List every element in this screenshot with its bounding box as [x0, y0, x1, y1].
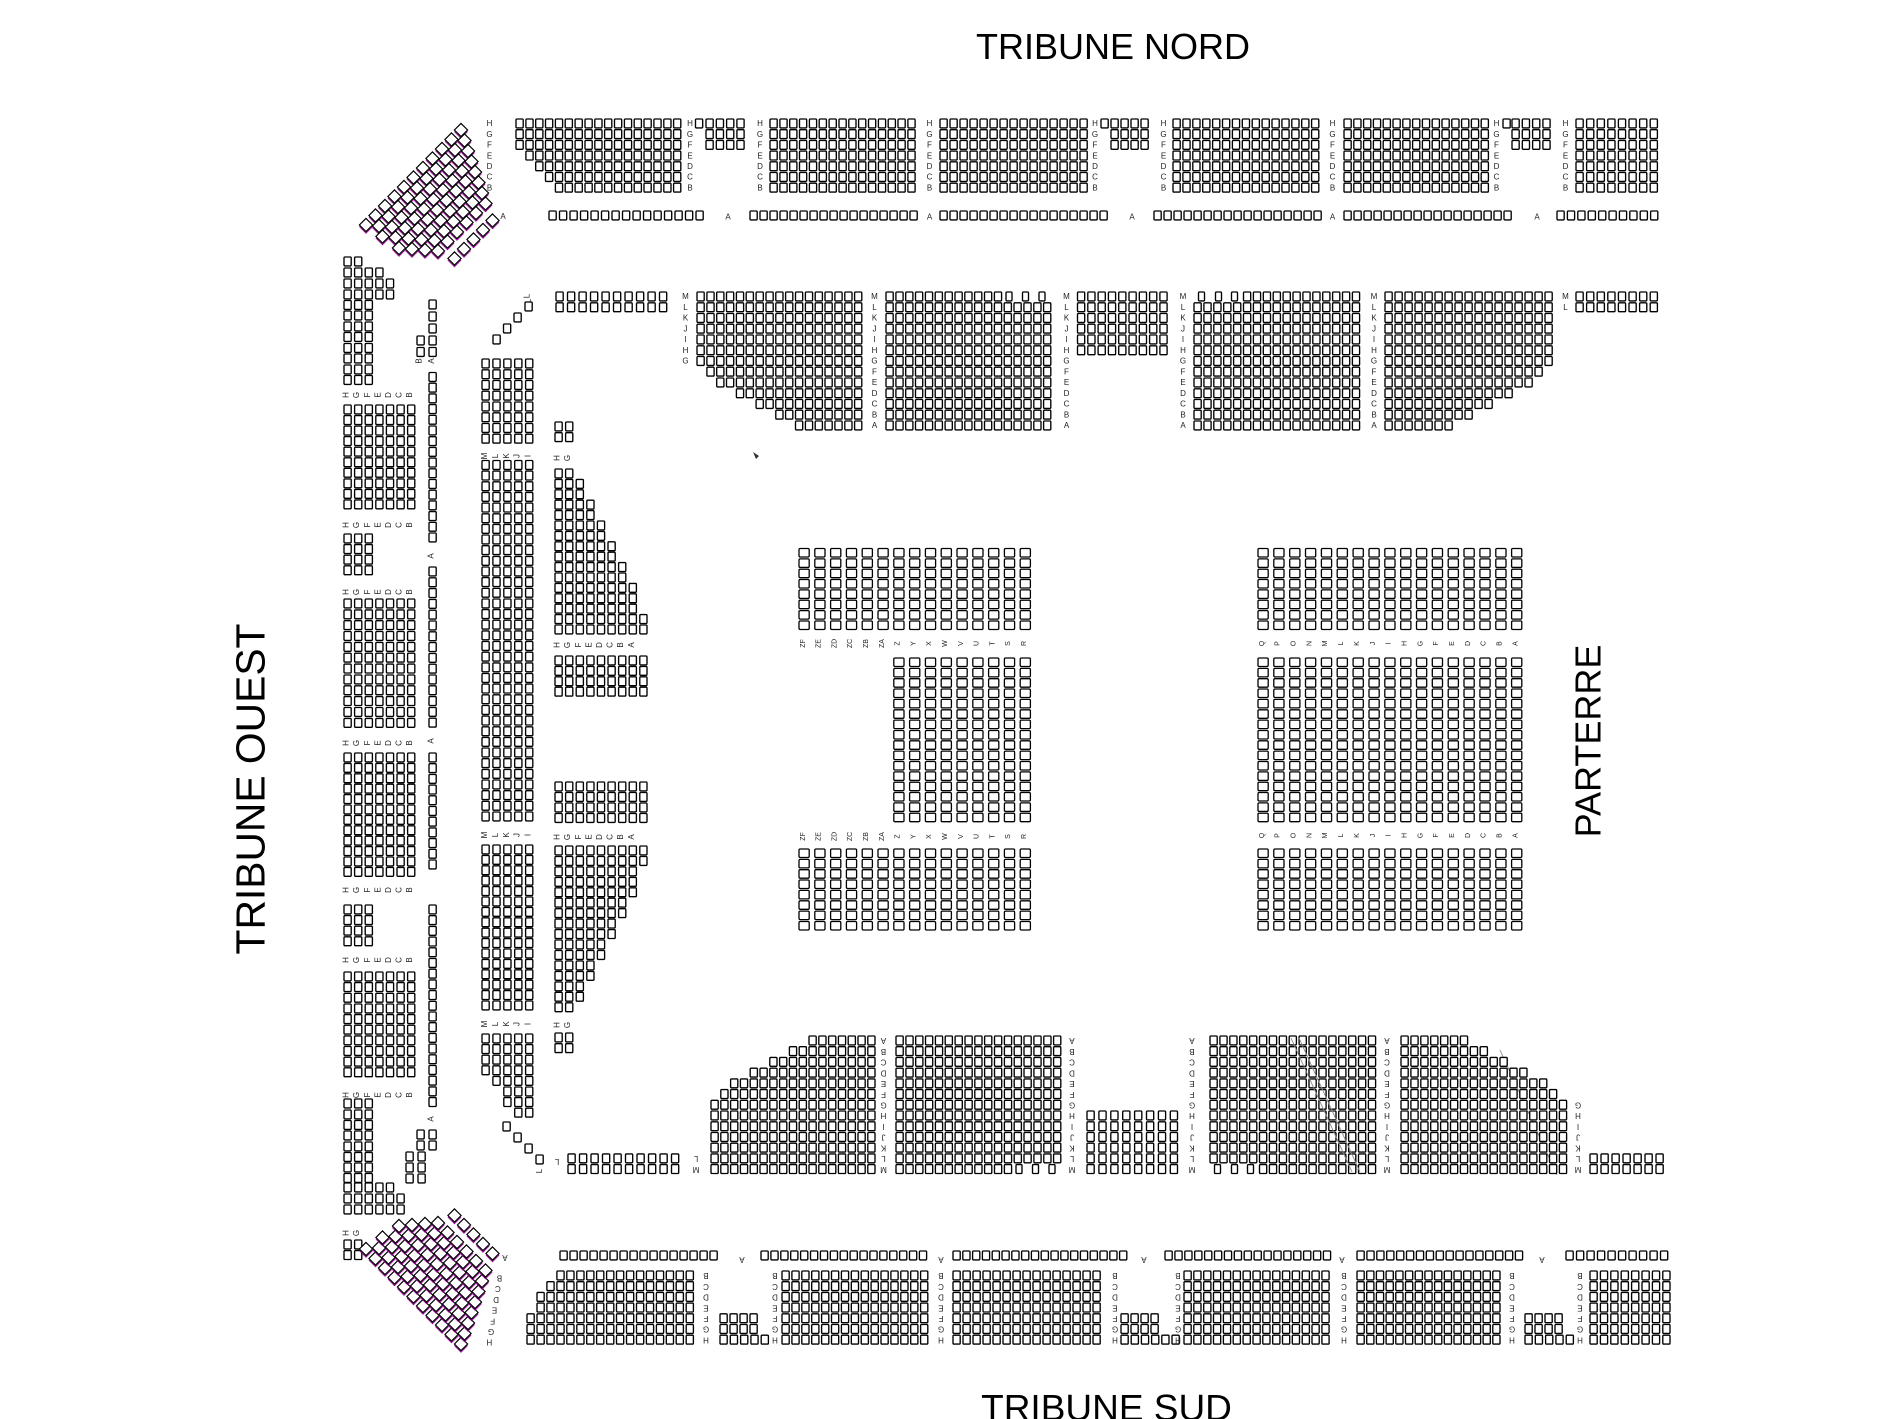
svg-text:B: B	[1494, 183, 1499, 192]
svg-text:D: D	[1161, 162, 1167, 171]
svg-text:L: L	[693, 1154, 698, 1163]
svg-text:B: B	[1064, 410, 1069, 419]
svg-text:E: E	[872, 378, 877, 387]
svg-text:J: J	[1385, 1133, 1389, 1142]
svg-text:E: E	[1341, 1303, 1346, 1312]
svg-text:E: E	[1577, 1303, 1582, 1312]
svg-text:G: G	[352, 589, 361, 595]
svg-text:G: G	[1493, 130, 1499, 139]
svg-text:A: A	[1371, 421, 1377, 430]
svg-text:K: K	[502, 832, 511, 838]
svg-text:F: F	[872, 367, 877, 376]
svg-text:L: L	[491, 453, 500, 458]
svg-text:G: G	[352, 957, 361, 963]
svg-text:D: D	[1069, 1068, 1075, 1077]
svg-text:E: E	[1064, 378, 1069, 387]
svg-text:G: G	[1112, 1325, 1118, 1334]
svg-text:G: G	[352, 392, 361, 398]
svg-text:L: L	[881, 1154, 886, 1163]
svg-text:B: B	[703, 1271, 708, 1280]
svg-text:D: D	[1175, 1293, 1181, 1302]
svg-text:B: B	[687, 183, 692, 192]
svg-text:E: E	[1509, 1303, 1514, 1312]
svg-text:H: H	[927, 119, 933, 128]
svg-text:J: J	[1576, 1133, 1580, 1142]
svg-text:D: D	[487, 162, 493, 171]
svg-text:H: H	[880, 1111, 886, 1120]
svg-text:C: C	[880, 1058, 886, 1067]
svg-text:H: H	[1341, 1335, 1347, 1344]
svg-text:K: K	[872, 314, 878, 323]
svg-text:K: K	[1180, 314, 1186, 323]
svg-text:H: H	[1494, 119, 1500, 128]
svg-text:H: H	[342, 1230, 351, 1236]
svg-text:E: E	[703, 1303, 708, 1312]
svg-text:C: C	[687, 173, 693, 182]
svg-text:E: E	[687, 151, 692, 160]
svg-text:H: H	[1575, 1111, 1581, 1120]
svg-text:M: M	[1068, 1165, 1075, 1174]
svg-text:E: E	[1189, 1079, 1194, 1088]
svg-text:A: A	[1384, 1036, 1390, 1045]
svg-text:L: L	[491, 1021, 500, 1026]
svg-text:H: H	[342, 887, 351, 893]
svg-text:E: E	[487, 151, 492, 160]
svg-text:M: M	[1188, 1165, 1195, 1174]
svg-text:B: B	[1189, 1047, 1194, 1056]
svg-text:H: H	[683, 346, 689, 355]
svg-text:C: C	[872, 400, 878, 409]
svg-text:A: A	[739, 1255, 745, 1264]
svg-text:B: B	[1577, 1271, 1582, 1280]
svg-text:A: A	[427, 553, 436, 559]
svg-text:E: E	[1371, 378, 1376, 387]
svg-text:H: H	[1092, 119, 1098, 128]
svg-text:F: F	[1577, 1314, 1582, 1323]
svg-text:D: D	[872, 389, 878, 398]
svg-text:I: I	[1071, 1122, 1073, 1131]
svg-text:A: A	[427, 1116, 436, 1122]
svg-text:D: D	[938, 1293, 944, 1302]
svg-text:K: K	[880, 1143, 886, 1152]
svg-text:G: G	[1384, 1101, 1390, 1110]
svg-text:M: M	[1371, 292, 1378, 301]
svg-text:D: D	[927, 162, 933, 171]
svg-text:H: H	[553, 455, 562, 461]
svg-text:F: F	[938, 1314, 943, 1323]
svg-text:J: J	[1065, 324, 1069, 333]
svg-text:A: A	[1330, 213, 1336, 222]
svg-text:E: E	[1112, 1303, 1117, 1312]
svg-text:B: B	[405, 522, 414, 527]
svg-text:J: J	[1181, 324, 1185, 333]
svg-text:E: E	[1092, 151, 1097, 160]
svg-text:H: H	[342, 392, 351, 398]
svg-text:E: E	[373, 392, 382, 397]
svg-text:F: F	[1064, 367, 1069, 376]
svg-text:L: L	[872, 303, 877, 312]
svg-text:C: C	[395, 392, 404, 398]
svg-text:F: F	[363, 740, 372, 745]
svg-text:B: B	[938, 1271, 943, 1280]
svg-text:H: H	[1112, 1335, 1118, 1344]
svg-text:F: F	[1494, 141, 1499, 150]
svg-text:H: H	[757, 119, 763, 128]
svg-text:A: A	[1180, 421, 1186, 430]
svg-text:M: M	[1574, 1165, 1581, 1174]
svg-text:H: H	[1161, 119, 1167, 128]
svg-text:B: B	[1175, 1271, 1180, 1280]
svg-text:G: G	[1341, 1325, 1347, 1334]
svg-text:F: F	[881, 1090, 886, 1099]
svg-text:H: H	[342, 589, 351, 595]
svg-text:G: G	[486, 130, 492, 139]
svg-text:J: J	[873, 324, 877, 333]
svg-text:E: E	[373, 887, 382, 892]
svg-text:K: K	[502, 1021, 511, 1027]
svg-text:B: B	[1092, 183, 1097, 192]
svg-text:D: D	[384, 589, 393, 595]
svg-text:G: G	[1063, 357, 1069, 366]
svg-text:M: M	[480, 452, 489, 459]
svg-text:I: I	[1182, 335, 1184, 344]
svg-text:G: G	[352, 740, 361, 746]
svg-text:G: G	[1371, 357, 1377, 366]
svg-text:A: A	[427, 738, 436, 744]
svg-text:D: D	[1330, 162, 1336, 171]
svg-text:H: H	[1577, 1335, 1583, 1344]
svg-text:J: J	[1372, 324, 1376, 333]
svg-text:A: A	[880, 1036, 886, 1045]
svg-text:C: C	[1577, 1282, 1583, 1291]
svg-text:I: I	[1386, 1122, 1388, 1131]
svg-text:D: D	[384, 392, 393, 398]
svg-text:D: D	[1064, 389, 1070, 398]
svg-text:C: C	[1494, 173, 1500, 182]
svg-text:M: M	[871, 292, 878, 301]
svg-text:L: L	[1064, 303, 1069, 312]
svg-text:E: E	[1161, 151, 1166, 160]
svg-text:I: I	[524, 834, 533, 836]
svg-text:H: H	[1330, 119, 1336, 128]
svg-text:H: H	[1509, 1335, 1515, 1344]
svg-text:B: B	[415, 358, 424, 363]
svg-text:B: B	[1180, 410, 1185, 419]
svg-text:A: A	[1189, 1036, 1195, 1045]
svg-text:B: B	[616, 834, 625, 839]
svg-text:A: A	[627, 834, 636, 840]
svg-text:C: C	[395, 887, 404, 893]
svg-text:G: G	[352, 1092, 361, 1098]
svg-text:L: L	[491, 832, 500, 837]
svg-text:TRIBUNE OUEST: TRIBUNE OUEST	[228, 624, 274, 955]
svg-text:G: G	[563, 455, 572, 461]
svg-text:G: G	[352, 522, 361, 528]
svg-text:G: G	[880, 1101, 886, 1110]
svg-text:F: F	[1181, 367, 1186, 376]
svg-text:B: B	[872, 410, 877, 419]
svg-text:G: G	[871, 357, 877, 366]
svg-text:G: G	[926, 130, 932, 139]
svg-text:H: H	[342, 1092, 351, 1098]
svg-text:E: E	[1384, 1079, 1389, 1088]
svg-text:L: L	[1563, 303, 1568, 312]
svg-text:H: H	[772, 1335, 778, 1344]
svg-text:D: D	[595, 642, 604, 648]
svg-text:E: E	[1494, 151, 1499, 160]
svg-text:C: C	[938, 1282, 944, 1291]
svg-text:G: G	[1180, 357, 1186, 366]
svg-text:F: F	[927, 141, 932, 150]
svg-text:J: J	[882, 1133, 886, 1142]
svg-text:A: A	[1534, 213, 1540, 222]
svg-text:B: B	[1069, 1047, 1074, 1056]
svg-text:K: K	[502, 453, 511, 459]
svg-text:H: H	[1384, 1111, 1390, 1120]
svg-text:D: D	[1092, 162, 1098, 171]
svg-text:D: D	[1563, 162, 1569, 171]
svg-text:I: I	[873, 335, 875, 344]
svg-text:B: B	[405, 740, 414, 745]
svg-text:F: F	[1563, 141, 1568, 150]
svg-text:B: B	[881, 1047, 886, 1056]
svg-text:L: L	[683, 303, 688, 312]
svg-text:I: I	[524, 1023, 533, 1025]
svg-text:B: B	[1341, 1271, 1346, 1280]
svg-text:H: H	[342, 740, 351, 746]
svg-text:E: E	[1180, 378, 1185, 387]
svg-text:H: H	[553, 834, 562, 840]
svg-text:E: E	[373, 740, 382, 745]
svg-text:H: H	[1563, 119, 1569, 128]
svg-text:L: L	[1189, 1154, 1194, 1163]
svg-text:A: A	[1339, 1255, 1345, 1264]
svg-text:K: K	[1384, 1143, 1390, 1152]
svg-text:E: E	[938, 1303, 943, 1312]
svg-text:B: B	[405, 392, 414, 397]
svg-text:F: F	[688, 141, 693, 150]
svg-text:G: G	[682, 357, 688, 366]
svg-text:B: B	[616, 642, 625, 647]
svg-text:G: G	[563, 1022, 572, 1028]
svg-text:C: C	[703, 1282, 709, 1291]
svg-text:L: L	[1575, 1154, 1580, 1163]
svg-text:C: C	[772, 1282, 778, 1291]
svg-text:B: B	[927, 183, 932, 192]
svg-text:F: F	[1330, 141, 1335, 150]
svg-text:J: J	[513, 454, 522, 458]
svg-text:I: I	[1065, 335, 1067, 344]
svg-text:I: I	[1577, 1122, 1579, 1131]
svg-text:E: E	[584, 642, 593, 647]
svg-text:J: J	[1190, 1133, 1194, 1142]
svg-text:E: E	[373, 522, 382, 527]
svg-text:B: B	[1112, 1271, 1117, 1280]
svg-text:E: E	[373, 1092, 382, 1097]
svg-text:H: H	[703, 1335, 709, 1344]
svg-text:F: F	[772, 1314, 777, 1323]
svg-text:I: I	[684, 335, 686, 344]
svg-text:A: A	[872, 421, 878, 430]
svg-text:D: D	[595, 834, 604, 840]
svg-text:E: E	[772, 1303, 777, 1312]
svg-text:G: G	[1189, 1101, 1195, 1110]
svg-text:G: G	[1092, 130, 1098, 139]
svg-text:F: F	[1384, 1090, 1389, 1099]
svg-text:D: D	[687, 162, 693, 171]
svg-text:C: C	[1092, 173, 1098, 182]
svg-text:C: C	[395, 740, 404, 746]
svg-text:L: L	[1384, 1154, 1389, 1163]
svg-text:G: G	[772, 1325, 778, 1334]
svg-text:H: H	[872, 346, 878, 355]
svg-text:A: A	[1064, 421, 1070, 430]
svg-text:M: M	[1562, 292, 1569, 301]
svg-text:G: G	[1577, 1325, 1583, 1334]
svg-text:C: C	[1509, 1282, 1515, 1291]
svg-text:B: B	[757, 183, 762, 192]
svg-text:G: G	[1160, 130, 1166, 139]
svg-text:H: H	[1069, 1111, 1075, 1120]
svg-text:F: F	[758, 141, 763, 150]
svg-text:D: D	[1112, 1293, 1118, 1302]
svg-text:K: K	[1371, 314, 1377, 323]
svg-text:D: D	[1180, 389, 1186, 398]
svg-text:F: F	[1069, 1090, 1074, 1099]
svg-text:D: D	[757, 162, 763, 171]
svg-text:A: A	[427, 358, 436, 364]
svg-text:F: F	[1372, 367, 1377, 376]
svg-text:J: J	[1070, 1133, 1074, 1142]
svg-text:M: M	[1063, 292, 1070, 301]
svg-text:H: H	[1180, 346, 1186, 355]
svg-text:E: E	[881, 1079, 886, 1088]
svg-text:C: C	[1371, 400, 1377, 409]
svg-text:F: F	[703, 1314, 708, 1323]
svg-text:H: H	[938, 1335, 944, 1344]
svg-text:I: I	[1191, 1122, 1193, 1131]
svg-text:C: C	[1161, 173, 1167, 182]
svg-text:C: C	[395, 957, 404, 963]
svg-text:G: G	[1509, 1325, 1515, 1334]
svg-text:PARTERRE: PARTERRE	[1568, 645, 1609, 838]
svg-text:H: H	[553, 1022, 562, 1028]
svg-text:F: F	[1161, 141, 1166, 150]
svg-text:E: E	[1330, 151, 1335, 160]
svg-text:K: K	[1069, 1143, 1075, 1152]
svg-text:D: D	[880, 1068, 886, 1077]
svg-text:TRIBUNE SUD: TRIBUNE SUD	[981, 1388, 1232, 1419]
svg-text:F: F	[363, 589, 372, 594]
svg-text:C: C	[1175, 1282, 1181, 1291]
svg-text:C: C	[1180, 400, 1186, 409]
svg-text:C: C	[1189, 1058, 1195, 1067]
svg-text:D: D	[1494, 162, 1500, 171]
svg-text:D: D	[384, 1092, 393, 1098]
svg-text:F: F	[1175, 1314, 1180, 1323]
svg-text:F: F	[1189, 1090, 1194, 1099]
svg-text:E: E	[1069, 1079, 1074, 1088]
svg-text:D: D	[384, 740, 393, 746]
svg-text:E: E	[757, 151, 762, 160]
svg-text:G: G	[703, 1325, 709, 1334]
svg-text:B: B	[1371, 410, 1376, 419]
svg-text:D: D	[1577, 1293, 1583, 1302]
svg-text:E: E	[1563, 151, 1568, 160]
svg-text:C: C	[395, 522, 404, 528]
svg-text:C: C	[757, 173, 763, 182]
svg-text:B: B	[487, 183, 492, 192]
svg-text:F: F	[363, 887, 372, 892]
svg-text:D: D	[384, 522, 393, 528]
svg-text:B: B	[405, 957, 414, 962]
svg-text:A: A	[927, 213, 933, 222]
svg-text:B: B	[1330, 183, 1335, 192]
svg-text:C: C	[606, 642, 615, 648]
svg-text:C: C	[395, 589, 404, 595]
svg-text:A: A	[938, 1255, 944, 1264]
svg-text:C: C	[606, 834, 615, 840]
svg-text:B: B	[405, 1092, 414, 1097]
svg-text:G: G	[1575, 1101, 1581, 1110]
svg-text:E: E	[584, 834, 593, 839]
svg-text:H: H	[1175, 1335, 1181, 1344]
svg-text:E: E	[373, 589, 382, 594]
svg-text:C: C	[1384, 1058, 1390, 1067]
svg-text:C: C	[1064, 400, 1070, 409]
svg-text:A: A	[1141, 1255, 1147, 1264]
svg-text:F: F	[1509, 1314, 1514, 1323]
svg-text:F: F	[574, 834, 583, 839]
svg-text:A: A	[1069, 1036, 1075, 1045]
svg-text:D: D	[772, 1293, 778, 1302]
svg-text:A: A	[725, 213, 731, 222]
svg-text:B: B	[405, 887, 414, 892]
svg-text:F: F	[574, 642, 583, 647]
svg-text:G: G	[757, 130, 763, 139]
svg-text:B: B	[405, 589, 414, 594]
svg-text:I: I	[1373, 335, 1375, 344]
svg-text:L: L	[1181, 303, 1186, 312]
svg-text:G: G	[687, 130, 693, 139]
svg-text:C: C	[487, 173, 493, 182]
svg-text:H: H	[342, 957, 351, 963]
svg-text:A: A	[627, 642, 636, 648]
svg-text:F: F	[363, 957, 372, 962]
svg-text:E: E	[927, 151, 932, 160]
svg-text:M: M	[1383, 1165, 1390, 1174]
svg-text:H: H	[553, 642, 562, 648]
svg-text:F: F	[363, 1092, 372, 1097]
svg-text:C: C	[1341, 1282, 1347, 1291]
svg-text:J: J	[513, 833, 522, 837]
svg-text:I: I	[524, 455, 533, 457]
svg-text:B: B	[1509, 1271, 1514, 1280]
svg-text:F: F	[363, 392, 372, 397]
svg-text:J: J	[684, 324, 688, 333]
svg-text:A: A	[1539, 1255, 1545, 1264]
svg-text:D: D	[384, 957, 393, 963]
svg-text:C: C	[1330, 173, 1336, 182]
svg-text:B: B	[1161, 183, 1166, 192]
svg-text:D: D	[1189, 1068, 1195, 1077]
svg-text:H: H	[1189, 1111, 1195, 1120]
svg-text:K: K	[1189, 1143, 1195, 1152]
svg-text:D: D	[703, 1293, 709, 1302]
svg-text:M: M	[692, 1165, 699, 1174]
svg-text:F: F	[1341, 1314, 1346, 1323]
svg-text:C: C	[1563, 173, 1569, 182]
